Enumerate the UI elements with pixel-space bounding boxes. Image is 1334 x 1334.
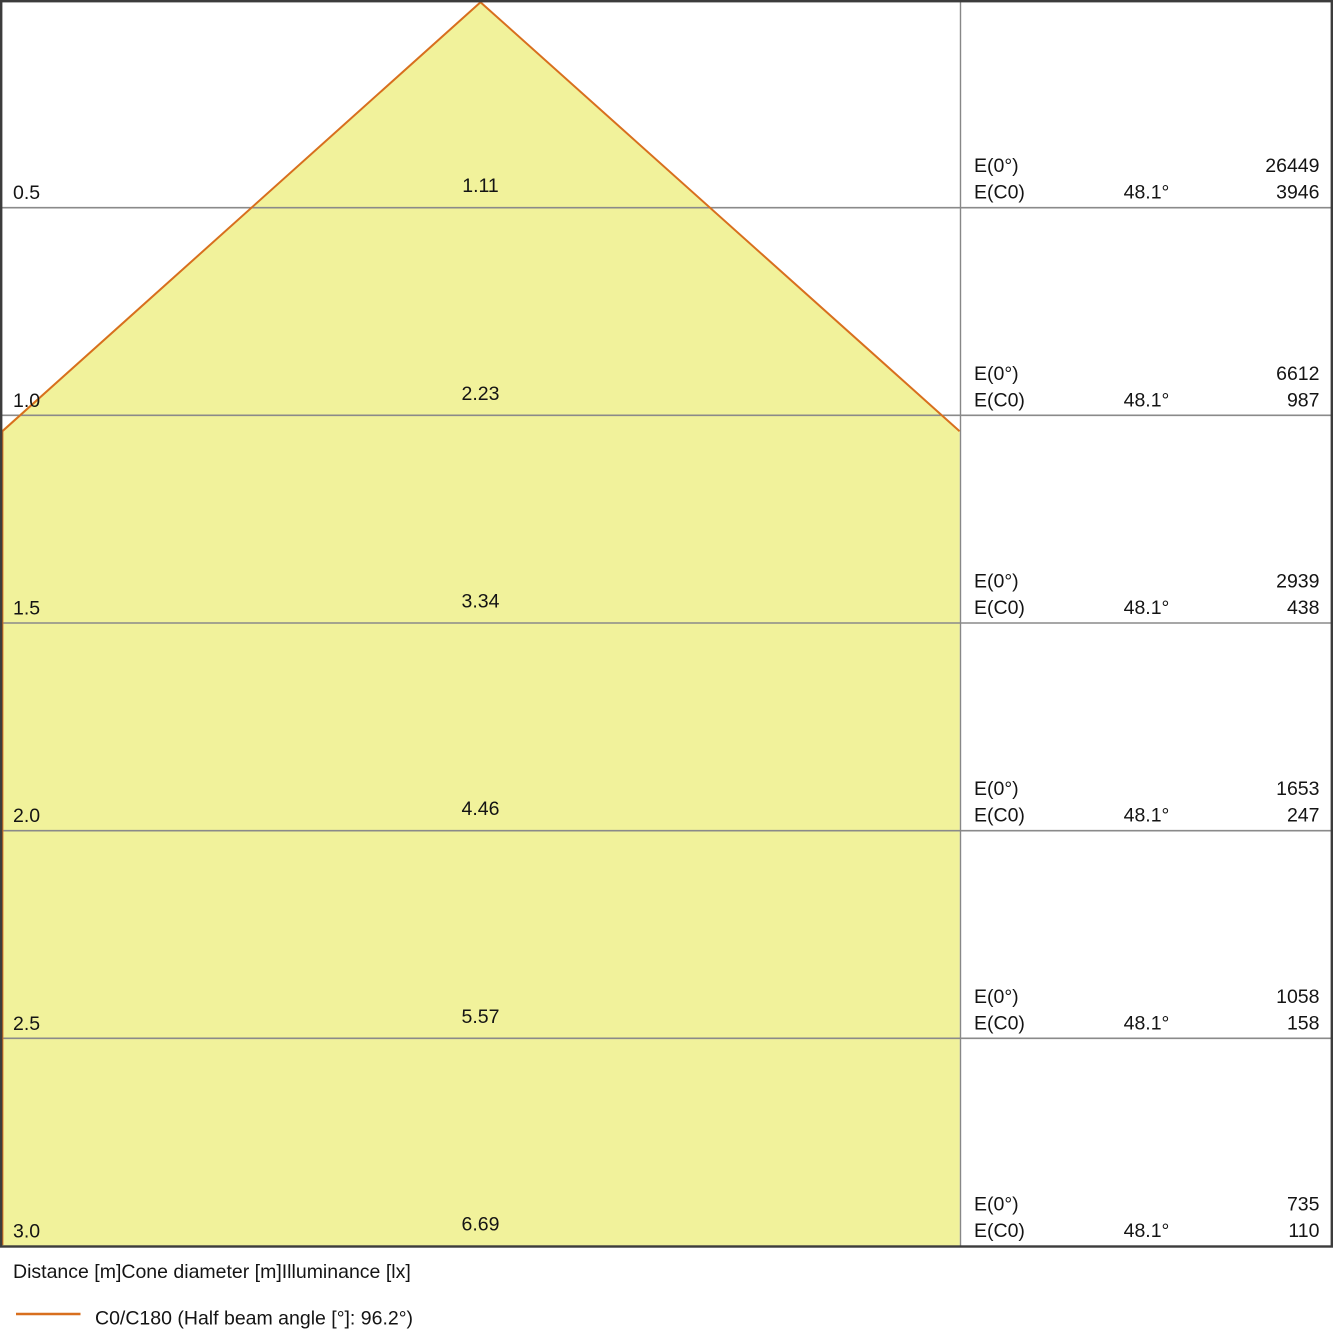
svg-text:E(0°): E(0°) — [974, 155, 1019, 177]
svg-text:2939: 2939 — [1276, 571, 1319, 593]
svg-text:1653: 1653 — [1276, 778, 1319, 800]
svg-text:48.1°: 48.1° — [1124, 597, 1170, 619]
svg-text:E(0°): E(0°) — [974, 571, 1019, 593]
svg-text:48.1°: 48.1° — [1124, 182, 1170, 204]
svg-text:3946: 3946 — [1276, 182, 1319, 204]
svg-text:2.0: 2.0 — [13, 805, 40, 827]
svg-text:0.5: 0.5 — [13, 182, 40, 204]
svg-text:3.0: 3.0 — [13, 1221, 40, 1243]
svg-text:E(C0): E(C0) — [974, 1012, 1025, 1034]
svg-text:1.0: 1.0 — [13, 390, 40, 412]
svg-text:2.5: 2.5 — [13, 1013, 40, 1035]
svg-text:2.23: 2.23 — [462, 383, 500, 405]
svg-text:48.1°: 48.1° — [1124, 805, 1170, 827]
svg-text:247: 247 — [1287, 805, 1320, 827]
svg-text:158: 158 — [1287, 1012, 1320, 1034]
svg-text:Distance [m]Cone diameter [m]I: Distance [m]Cone diameter [m]Illuminance… — [13, 1261, 411, 1283]
svg-text:E(C0): E(C0) — [974, 597, 1025, 619]
svg-text:E(C0): E(C0) — [974, 389, 1025, 411]
svg-text:110: 110 — [1288, 1220, 1319, 1242]
svg-text:E(0°): E(0°) — [974, 1194, 1019, 1216]
svg-text:E(C0): E(C0) — [974, 1220, 1025, 1242]
svg-text:1.5: 1.5 — [13, 598, 40, 620]
svg-text:E(C0): E(C0) — [974, 182, 1025, 204]
svg-text:E(0°): E(0°) — [974, 986, 1019, 1008]
svg-text:48.1°: 48.1° — [1124, 389, 1170, 411]
svg-text:48.1°: 48.1° — [1124, 1012, 1170, 1034]
svg-text:4.46: 4.46 — [462, 798, 500, 820]
svg-text:48.1°: 48.1° — [1124, 1220, 1170, 1242]
svg-text:987: 987 — [1287, 389, 1320, 411]
svg-text:E(C0): E(C0) — [974, 805, 1025, 827]
svg-text:1.11: 1.11 — [462, 175, 499, 197]
svg-text:E(0°): E(0°) — [974, 363, 1019, 385]
svg-text:1058: 1058 — [1276, 986, 1319, 1008]
svg-text:735: 735 — [1287, 1194, 1320, 1216]
svg-text:E(0°): E(0°) — [974, 778, 1019, 800]
svg-text:6612: 6612 — [1276, 363, 1319, 385]
svg-text:6.69: 6.69 — [462, 1214, 500, 1236]
svg-text:26449: 26449 — [1265, 155, 1319, 177]
svg-text:C0/C180 (Half beam angle [°]:: C0/C180 (Half beam angle [°]: 96.2°) — [95, 1308, 413, 1330]
svg-text:3.34: 3.34 — [462, 591, 500, 613]
svg-text:5.57: 5.57 — [462, 1006, 500, 1028]
svg-text:438: 438 — [1287, 597, 1320, 619]
